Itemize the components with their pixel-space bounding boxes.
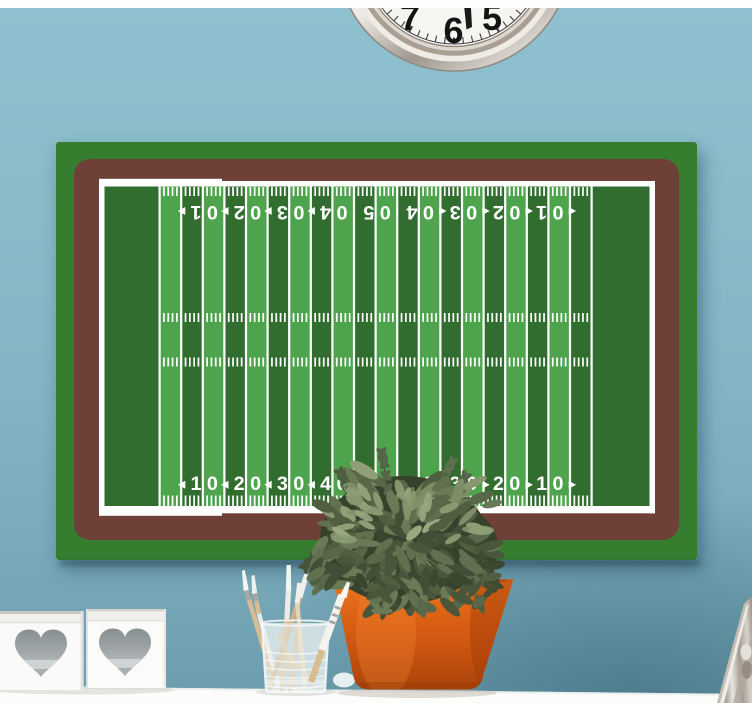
svg-text:0: 0 [293,201,304,223]
svg-text:0: 0 [509,201,520,223]
svg-text:0: 0 [250,201,261,223]
svg-text:4: 4 [320,201,331,223]
svg-text:0: 0 [423,201,434,223]
svg-text:3: 3 [277,201,288,223]
svg-text:0: 0 [466,201,477,223]
svg-text:4: 4 [406,201,417,223]
svg-text:3: 3 [450,201,461,223]
svg-text:1: 1 [190,473,201,495]
svg-text:1: 1 [536,473,547,495]
svg-text:0: 0 [336,201,347,223]
svg-text:5: 5 [363,201,374,223]
svg-text:0: 0 [250,473,261,495]
svg-text:2: 2 [234,201,245,223]
svg-text:2: 2 [493,201,504,223]
svg-text:6: 6 [443,10,463,51]
svg-text:1: 1 [536,201,547,223]
svg-text:1: 1 [190,201,201,223]
svg-text:0: 0 [553,473,564,495]
svg-text:2: 2 [234,473,245,495]
svg-text:0: 0 [380,201,391,223]
svg-text:0: 0 [207,473,218,495]
svg-text:0: 0 [553,201,564,223]
svg-text:0: 0 [207,201,218,223]
